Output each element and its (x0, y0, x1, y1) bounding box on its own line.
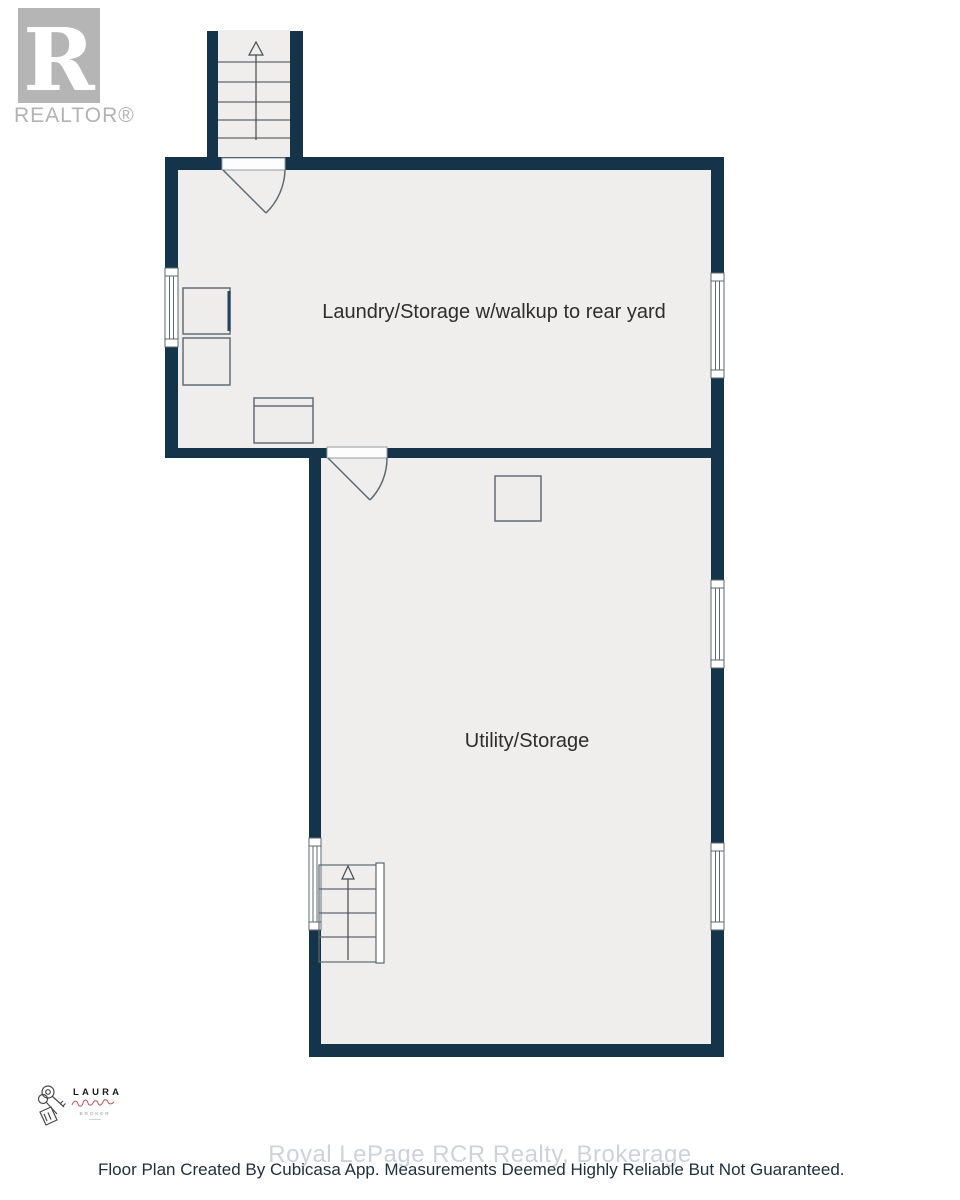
utility-bottom-wall (309, 1044, 724, 1057)
top-door-panel (222, 158, 285, 170)
window-utility-right-upper (711, 580, 724, 668)
room-label-laundry: Laundry/Storage w/walkup to rear yard (322, 301, 666, 323)
appliance-symbol (183, 288, 230, 334)
appliance-symbol (183, 338, 230, 385)
floorplan-drawing: Laundry/Storage w/walkup to rear yard Ut… (0, 0, 960, 1200)
disclaimer-text: Floor Plan Created By Cubicasa App. Meas… (98, 1159, 845, 1181)
room-floors (178, 30, 711, 1044)
laundry-bottom-wall (165, 448, 724, 458)
stairwell-left-wall (207, 31, 218, 157)
utility-left-wall (309, 448, 321, 1057)
utility-right-wall (711, 458, 724, 1057)
stamp-divider (89, 1119, 101, 1120)
counter-symbol (254, 398, 313, 443)
window-laundry-right (711, 273, 724, 378)
stair-handrail (376, 863, 384, 963)
agent-name: LAURA (73, 1087, 122, 1098)
window-utility-right-lower (711, 843, 724, 930)
keys-icon (39, 1086, 66, 1125)
agent-signature-script (72, 1100, 114, 1106)
middle-door-panel (327, 447, 387, 458)
room-label-utility: Utility/Storage (465, 730, 590, 752)
stairwell-right-wall (290, 31, 303, 157)
window-laundry-left (165, 268, 178, 347)
agent-title: BROKER (79, 1111, 110, 1117)
floorplan-page: R REALTOR® (0, 0, 960, 1200)
agent-stamp: LAURA BROKER (34, 1082, 126, 1134)
utility-box-symbol (495, 476, 541, 521)
